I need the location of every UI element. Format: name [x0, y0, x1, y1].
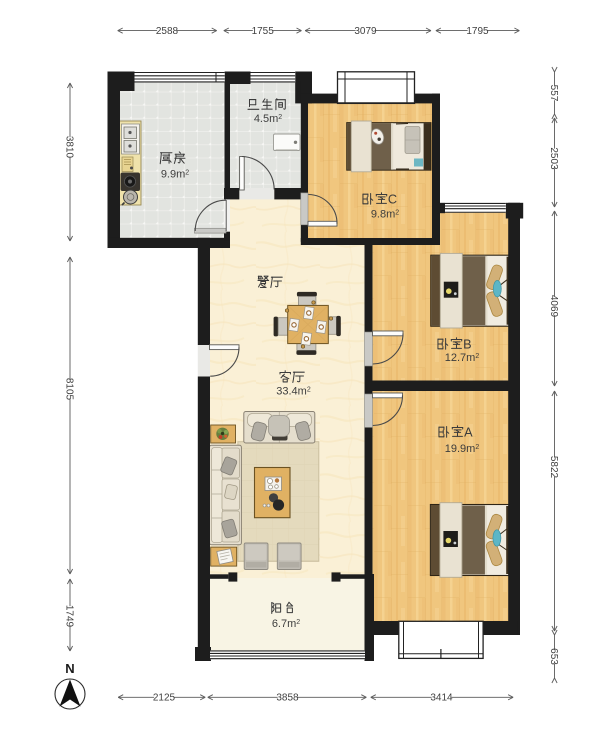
svg-text:1755: 1755	[252, 26, 275, 37]
svg-text:6.7m2: 6.7m2	[272, 618, 300, 630]
svg-text:2503: 2503	[548, 147, 559, 170]
svg-text:1749: 1749	[64, 605, 75, 628]
svg-text:557: 557	[548, 85, 559, 102]
svg-text:3858: 3858	[276, 693, 299, 704]
svg-text:12.7m2: 12.7m2	[445, 352, 480, 364]
svg-text:1795: 1795	[466, 26, 489, 37]
svg-text:4069: 4069	[548, 295, 559, 318]
svg-text:33.4m2: 33.4m2	[276, 386, 311, 398]
svg-text:A: A	[464, 426, 473, 440]
svg-text:9.8m2: 9.8m2	[371, 209, 399, 221]
svg-text:8105: 8105	[64, 378, 75, 401]
svg-text:5822: 5822	[548, 456, 559, 479]
svg-text:2125: 2125	[153, 693, 176, 704]
svg-text:3414: 3414	[430, 693, 453, 704]
svg-text:4.5m2: 4.5m2	[254, 113, 282, 125]
svg-text:3810: 3810	[64, 136, 75, 159]
svg-text:653: 653	[548, 648, 559, 665]
svg-text:19.9m2: 19.9m2	[445, 443, 480, 455]
svg-text:9.9m2: 9.9m2	[161, 169, 189, 181]
svg-text:B: B	[463, 338, 471, 352]
svg-text:N: N	[65, 661, 74, 676]
svg-text:2588: 2588	[156, 26, 179, 37]
svg-text:3079: 3079	[354, 26, 377, 37]
svg-text:C: C	[388, 193, 397, 207]
